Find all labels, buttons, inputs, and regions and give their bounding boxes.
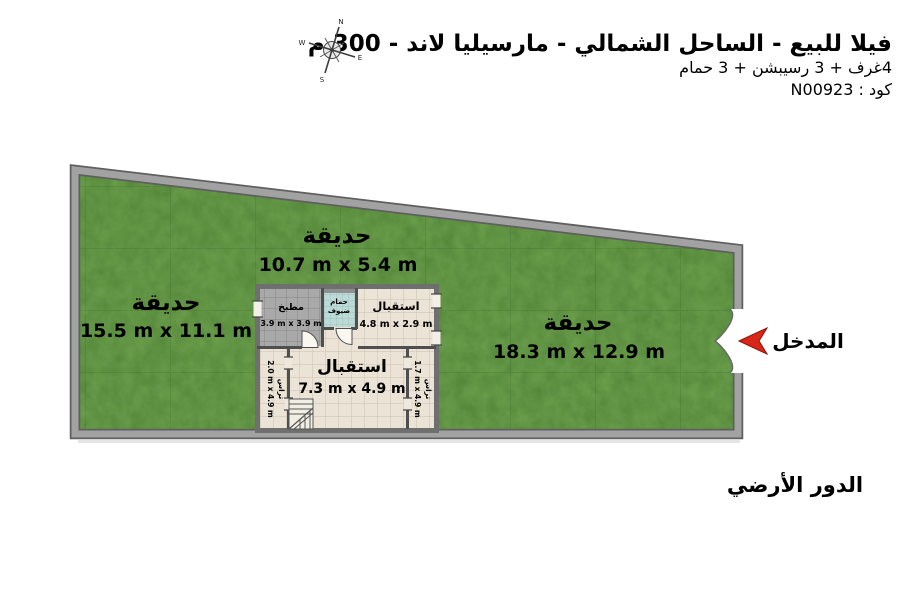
bathroom-name-line1: حمام <box>330 298 348 306</box>
reception-large-name: استقبال <box>317 357 387 377</box>
terrace-right-name: تراس <box>424 379 433 400</box>
stairs <box>289 399 313 429</box>
garden-right-dims: 18.3 m x 12.9 m <box>493 341 665 363</box>
garden-left-name: حديقة <box>132 290 201 316</box>
compass-north-label: N <box>338 18 343 26</box>
floor-plan-page: فيلا للبيع - الساحل الشمالي - مارسيليا ل… <box>0 0 900 600</box>
terrace-left-name: تراس <box>277 379 286 400</box>
terrace-left-dims: 2.0 m x 4.9 m <box>266 360 275 418</box>
kitchen-name: مطبخ <box>278 302 304 313</box>
garden-right-name: حديقة <box>544 310 613 336</box>
plot-shadow <box>78 440 740 443</box>
kitchen-dims: 3.9 m x 3.9 m <box>260 319 321 328</box>
compass-rose: N E S W <box>299 18 363 84</box>
floor-label: الدور الأرضي <box>727 471 863 497</box>
reception-small-name: استقبال <box>372 299 419 313</box>
entrance-label: المدخل <box>772 329 844 353</box>
garden-top-name: حديقة <box>303 223 372 249</box>
bathroom-name-line2: ضيوف <box>328 307 350 315</box>
reception-large-dims: 7.3 m x 4.9 m <box>298 381 405 397</box>
compass-south-label: S <box>320 76 325 84</box>
compass-west-label: W <box>299 39 306 47</box>
floor-plan-drawing: N E S W <box>0 0 900 600</box>
compass-center-dot <box>330 48 334 52</box>
reception-small-dims: 4.8 m x 2.9 m <box>360 319 433 330</box>
garden-top-dims: 10.7 m x 5.4 m <box>259 254 418 276</box>
terrace-right-dims: 1.7 m x 4.9 m <box>413 360 422 418</box>
garden-left-dims: 15.5 m x 11.1 m <box>80 320 252 342</box>
compass-east-label: E <box>358 54 362 62</box>
